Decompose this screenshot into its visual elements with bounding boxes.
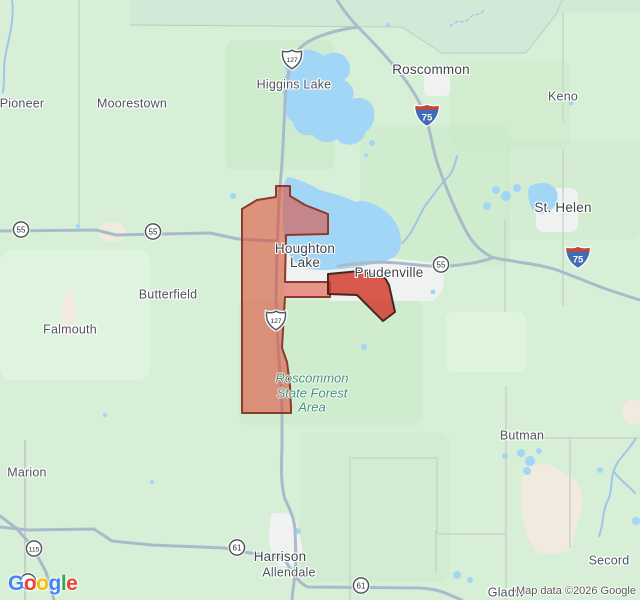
google-logo[interactable]: Google [8,572,77,596]
forest-area-label: Roscommon State Forest Area [276,371,349,415]
google-logo-letter: e [66,572,77,595]
map-canvas[interactable]: PioneerMoorestownHiggins LakeRoscommonKe… [0,0,640,600]
map-attribution: Map data ©2026 Google [516,585,636,597]
map-tiles [0,0,640,600]
google-logo-letter: o [24,572,36,595]
google-logo-letter: g [49,572,61,595]
google-logo-letter: o [36,572,48,595]
google-logo-letter: G [8,572,24,595]
